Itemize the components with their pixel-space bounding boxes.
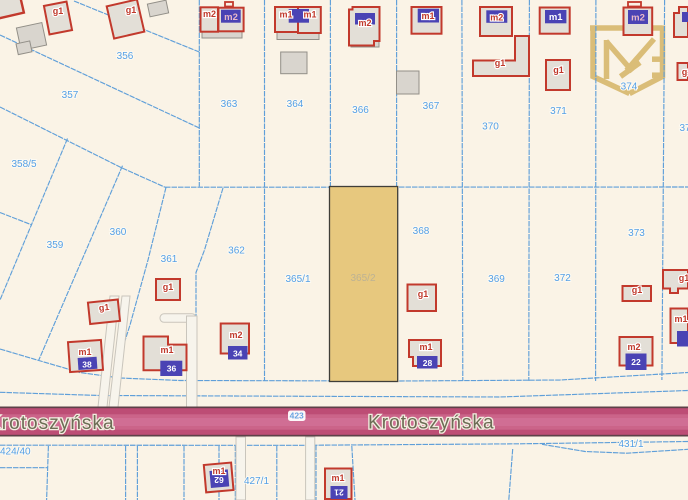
svg-text:367: 367	[423, 101, 440, 112]
svg-text:m2: m2	[358, 18, 371, 28]
svg-text:g1: g1	[98, 302, 110, 313]
svg-text:360: 360	[110, 227, 127, 238]
svg-text:m1: m1	[212, 466, 225, 476]
svg-text:371: 371	[550, 106, 567, 117]
svg-text:m2: m2	[224, 12, 238, 23]
svg-text:363: 363	[221, 99, 238, 110]
svg-text:m1: m1	[419, 342, 432, 352]
svg-text:427/1: 427/1	[244, 476, 269, 487]
svg-text:g1: g1	[682, 67, 688, 77]
svg-text:m1: m1	[303, 10, 316, 20]
svg-text:m2: m2	[229, 330, 242, 340]
svg-text:28: 28	[423, 358, 433, 368]
svg-text:374: 374	[621, 82, 638, 93]
svg-text:372: 372	[554, 273, 571, 284]
svg-text:m1: m1	[279, 10, 292, 20]
svg-text:g1: g1	[553, 65, 564, 75]
svg-text:g1: g1	[53, 6, 64, 16]
svg-text:m1: m1	[78, 347, 91, 357]
svg-text:365/2: 365/2	[350, 273, 375, 284]
svg-text:g1: g1	[418, 289, 429, 299]
svg-text:g1: g1	[163, 282, 174, 292]
svg-text:357: 357	[62, 90, 79, 101]
svg-text:364: 364	[287, 99, 304, 110]
svg-text:m2: m2	[490, 12, 503, 22]
svg-text:g1: g1	[126, 5, 137, 15]
svg-text:356: 356	[117, 51, 134, 62]
svg-text:423: 423	[290, 411, 304, 421]
svg-text:424/40: 424/40	[0, 447, 31, 458]
svg-text:431/1: 431/1	[618, 439, 643, 450]
svg-text:g1: g1	[679, 273, 688, 283]
svg-text:Krotoszyńska: Krotoszyńska	[0, 413, 115, 434]
svg-text:358/5: 358/5	[11, 159, 36, 170]
svg-text:m1: m1	[331, 473, 344, 483]
svg-text:37: 37	[679, 123, 688, 134]
svg-text:m2: m2	[627, 342, 640, 352]
svg-text:g1: g1	[632, 285, 643, 295]
svg-text:359: 359	[47, 240, 64, 251]
svg-text:36: 36	[167, 364, 177, 374]
svg-text:369: 369	[488, 274, 505, 285]
svg-text:368: 368	[413, 226, 430, 237]
svg-text:365/1: 365/1	[285, 274, 310, 285]
svg-text:g1: g1	[495, 58, 506, 68]
svg-text:62: 62	[214, 475, 224, 485]
svg-text:370: 370	[482, 122, 499, 133]
svg-text:361: 361	[161, 254, 178, 265]
svg-text:m1: m1	[674, 314, 687, 324]
svg-text:21: 21	[334, 488, 344, 498]
svg-text:m1: m1	[160, 345, 173, 355]
svg-text:m1: m1	[549, 12, 563, 23]
svg-text:38: 38	[82, 360, 92, 370]
svg-text:366: 366	[352, 105, 369, 116]
svg-text:22: 22	[631, 357, 641, 367]
svg-text:362: 362	[228, 246, 245, 257]
svg-text:m2: m2	[203, 9, 216, 19]
svg-text:373: 373	[628, 228, 645, 239]
svg-text:Krotoszyńska: Krotoszyńska	[368, 413, 495, 434]
svg-text:m2: m2	[631, 13, 645, 24]
svg-text:34: 34	[233, 349, 243, 359]
svg-text:m1: m1	[421, 11, 434, 21]
